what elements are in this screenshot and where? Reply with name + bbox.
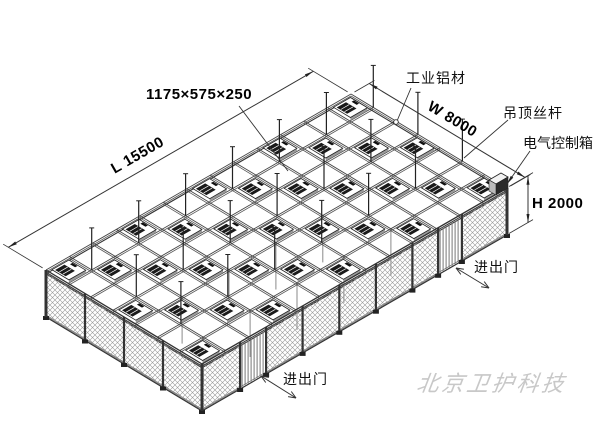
electrical-control-box-label: 电气控制箱 [523, 136, 593, 151]
technical-drawing-canvas: 1175×575×250 L 15500 工业铝材 W 8000 吊顶丝杆 电气… [0, 0, 600, 425]
unit-size-dimension-label: 1175×575×250 [146, 87, 252, 104]
ceiling-rod-label: 吊顶丝杆 [503, 106, 563, 121]
door-label-right: 进出门 [474, 260, 519, 275]
height-dimension-label: H 2000 [532, 196, 583, 213]
company-watermark: 北京卫护科技 [415, 366, 570, 398]
isometric-enclosure-drawing [0, 0, 600, 425]
door-label-bottom: 进出门 [283, 372, 328, 387]
aluminum-material-label: 工业铝材 [406, 71, 466, 86]
